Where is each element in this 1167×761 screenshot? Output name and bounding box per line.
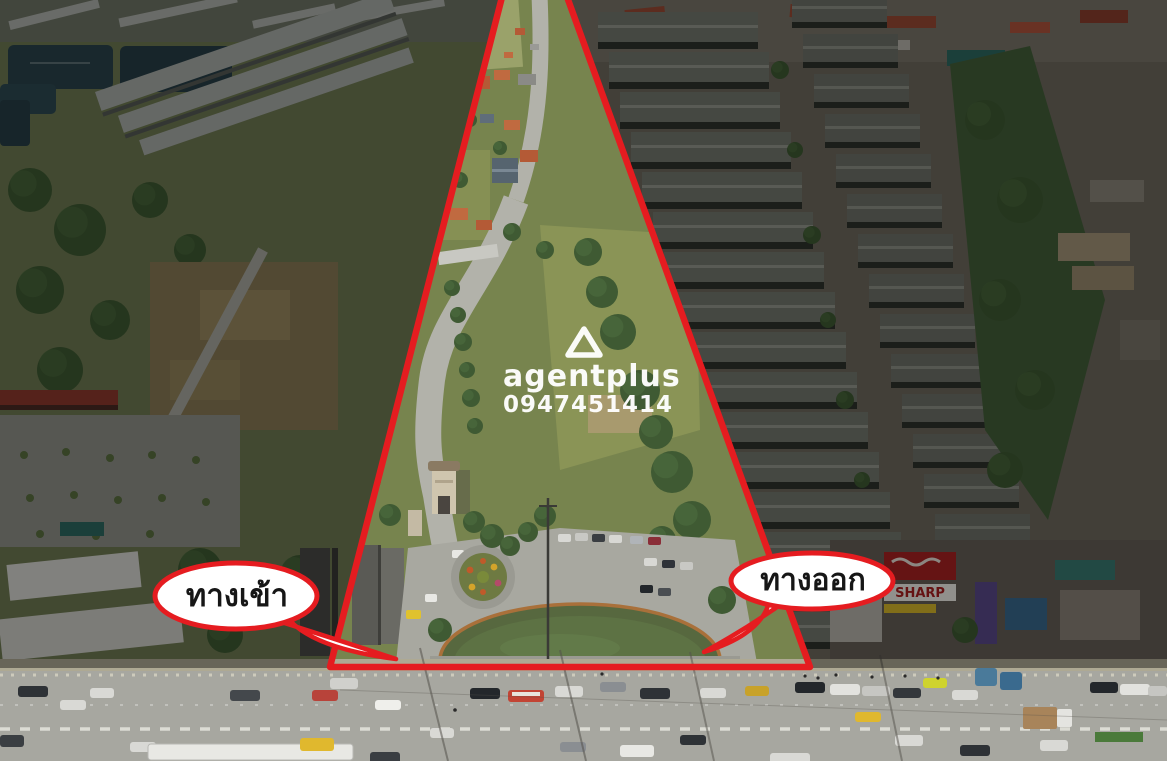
yellow-car <box>406 610 421 619</box>
entrance-label: ทางเข้า <box>156 575 318 617</box>
aerial-photo: SHARP <box>0 0 1167 761</box>
watermark-phone: 0947451414 <box>503 392 665 418</box>
exit-label: ทางออก <box>732 560 894 602</box>
watermark-brand: agentplus <box>503 362 665 392</box>
agentplus-logo-icon <box>562 324 606 360</box>
watermark: agentplus 0947451414 <box>503 324 665 418</box>
